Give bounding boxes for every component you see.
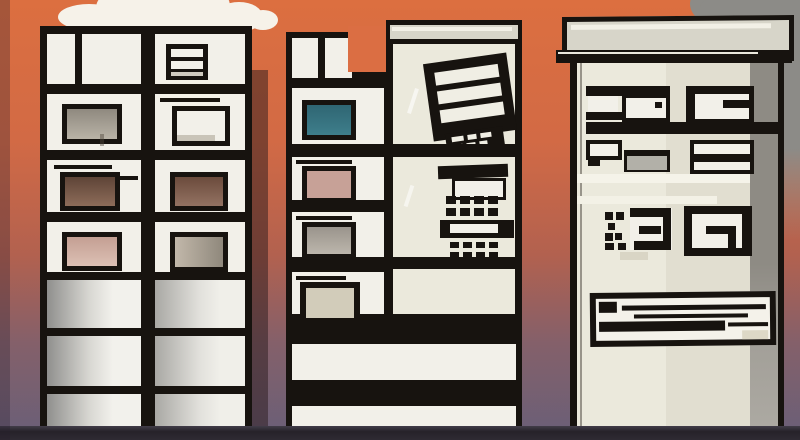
keypad-pixel [450,242,459,248]
sketch-dash [116,176,138,180]
striped-base [286,318,522,428]
roof-notch [348,26,390,72]
window [170,232,228,272]
pixel-deco [615,233,622,240]
louver-slat [434,64,499,86]
ground-strip [0,426,800,440]
glyph-window-bar [639,226,661,234]
sign-stripe [634,313,748,318]
sign-corner [742,330,768,339]
pixel-deco [605,212,613,220]
tower-shadow [250,70,268,428]
panel-divider [318,38,325,78]
vent-dash [480,132,492,138]
shaded-panel [47,280,141,328]
roof-cap [390,25,518,39]
paint-drip [100,134,104,146]
keypad-pixel [446,208,456,216]
sketch-line [296,216,352,220]
keypad-pixel [460,196,470,204]
sign-stripe [728,322,768,326]
louver-slat [437,83,502,105]
ac-unit-keypad [446,196,504,216]
sketch-line [54,165,112,169]
keypad-pixel [488,196,498,204]
vent-dash [467,134,477,140]
ac-box-face [627,156,667,170]
shaded-panel [47,394,141,428]
window-pane [588,96,618,112]
window [686,86,754,124]
sketch-line [296,160,352,164]
sketch-line [160,98,220,102]
louver-slat [171,61,203,69]
floor-band [286,144,522,157]
window [62,104,122,144]
sign-block [599,302,617,313]
light-stripe [577,196,717,204]
striped-sign [590,291,777,347]
panel-divider [75,34,82,84]
keypad-pixel [488,208,498,216]
facade-gray-column [750,63,778,428]
glyph-window-bar [728,226,736,248]
window-shadow [620,252,648,260]
left-tower-2 [148,26,252,428]
shaded-panel [155,280,245,328]
pixel-deco [605,233,613,241]
louver-window [166,44,208,80]
roof-band-highlight [558,52,758,54]
ac-unit-keypad [450,242,506,258]
pixel-deco [618,243,626,250]
pixel-deco [616,212,624,220]
keypad-pixel [476,242,485,248]
louver-slat [171,49,203,57]
window-sill [177,135,215,141]
window-mullion [694,154,750,162]
ac-box [624,150,670,172]
pixel-deco [605,243,614,250]
keypad-pixel [446,196,456,204]
window [586,140,622,160]
base-stripe [292,406,516,428]
ac-unit-bar [438,164,508,179]
vent-dash [451,136,464,143]
facade-panel [393,269,515,314]
roof-band [556,50,792,63]
keypad-pixel [474,196,484,204]
glyph-window-bar [634,241,671,250]
roof-highlight [392,27,512,31]
sign-stripe [622,304,766,311]
window [170,172,228,211]
edge-vignette [0,0,10,440]
middle-tower-left-column [286,32,390,320]
window [172,106,230,146]
ac-unit-slot [450,224,498,233]
light-stripe [577,174,750,183]
highlight-streak [407,88,419,114]
window [60,172,120,211]
shaded-panel [155,336,245,386]
window-pink [302,166,356,203]
edge-line [580,63,582,428]
left-tower-1 [40,26,148,428]
glyph-window [684,206,752,256]
ac-unit-bar [440,220,514,238]
base-stripe [292,344,516,380]
window [622,94,670,122]
ac-unit-louver [423,53,517,142]
highlight-streak [404,185,415,207]
window-foot [588,160,600,166]
louver-slat [440,101,505,123]
keypad-pixel [474,208,484,216]
roof-highlight [571,23,771,30]
window-dot [655,102,662,108]
sketch-line [296,276,346,280]
floor-band [586,122,778,134]
window-teal [302,100,356,140]
window [690,140,754,174]
sign-stripe [599,321,725,332]
white-cloud-icon [248,10,278,30]
louver-slat [171,72,203,76]
window [62,232,122,271]
right-building-body [570,63,784,428]
shaded-panel [47,336,141,386]
floor-band [286,257,522,269]
keypad-pixel [489,242,498,248]
window-gray [302,222,356,259]
keypad-pixel [463,242,472,248]
window-mullion [723,100,754,108]
keypad-pixel [460,208,470,216]
shaded-panel [155,394,245,428]
illustration-scene [0,0,800,440]
tower-panel [47,34,141,84]
pixel-deco [608,223,615,230]
